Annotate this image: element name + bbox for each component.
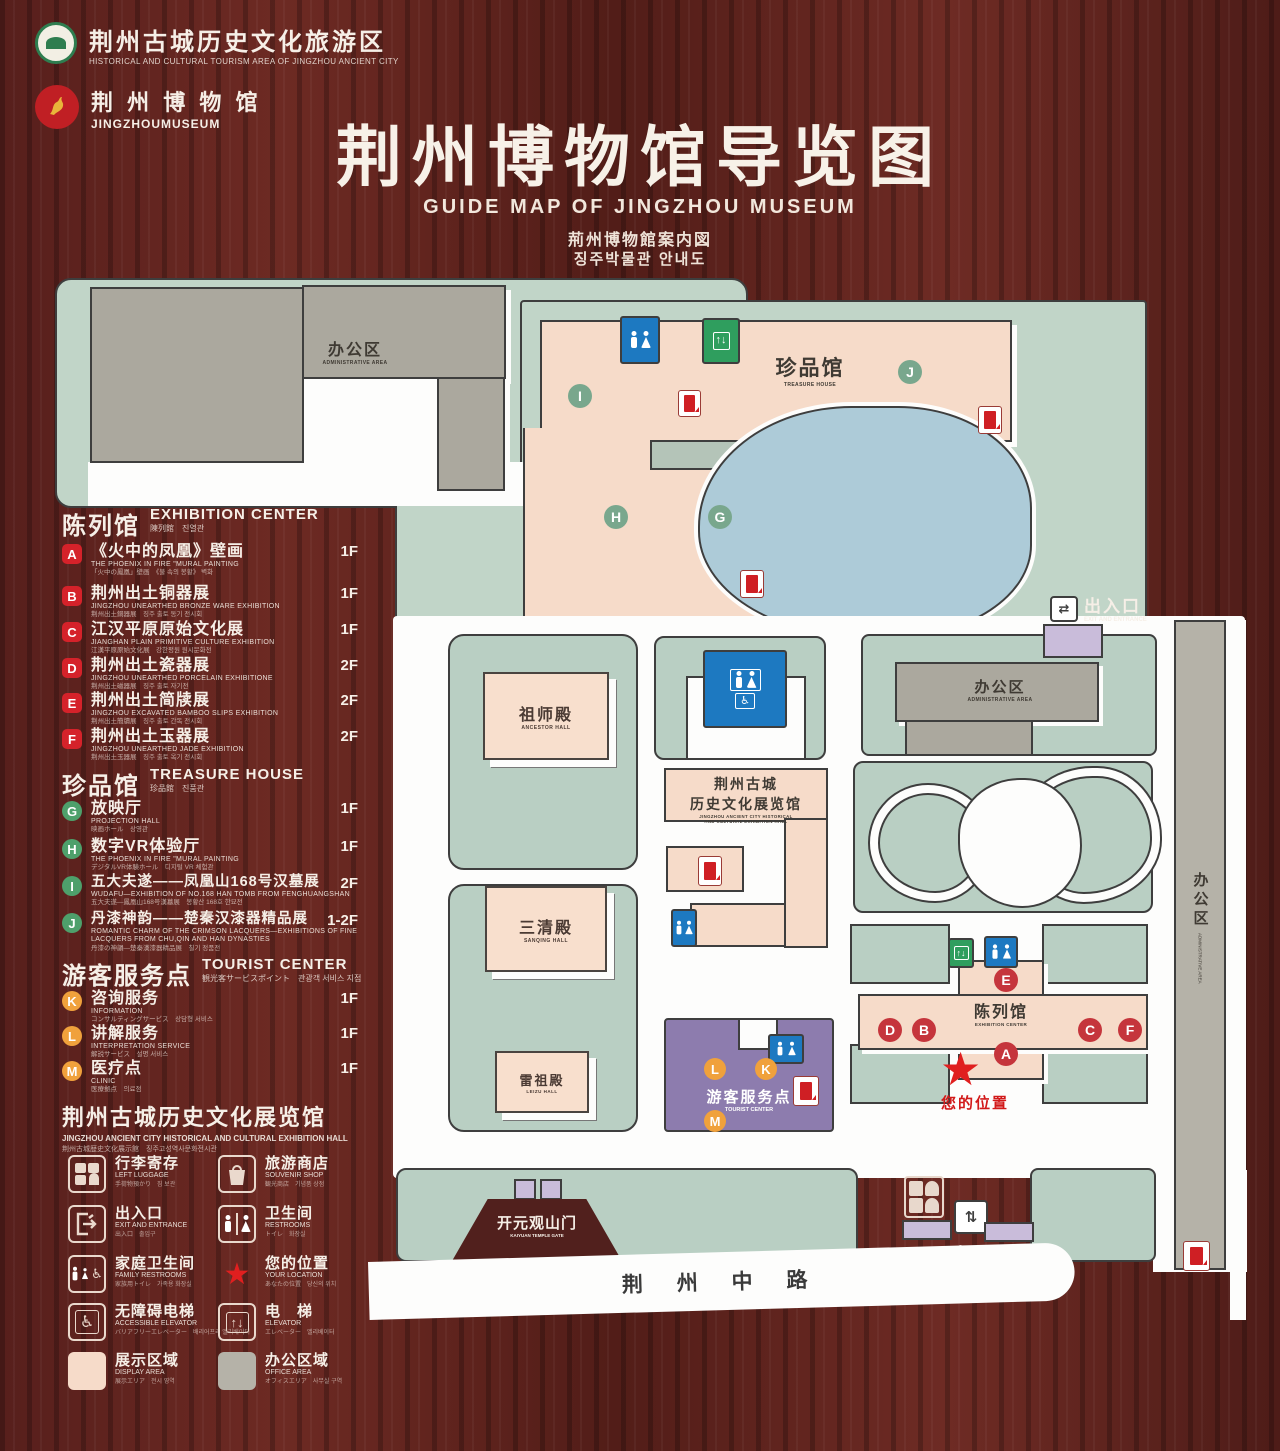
fire-extinguisher-icon [740,570,764,598]
legend-office-area: 办公区域 OFFICE AREA オフィスエリア 사무실 구역 [218,1352,342,1390]
marker-H: H [604,505,628,529]
legend-item-F: F 荆州出土玉器展 JINGZHOU UNEARTHED JADE EXHIBI… [62,728,358,762]
marker-C: C [1078,1018,1102,1042]
elevator-icon-exh: ↑↓ [948,938,974,968]
fire-extinguisher-icon [678,390,701,417]
treasure-house-label: 珍品馆 TREASURE HOUSE [755,352,865,388]
legend-display-area: 展示区域 DISPLAY AREA 展示エリア 전시 영역 [68,1352,179,1390]
legend-souvenir-shop: 旅游商店 SOUVENIR SHOP 観光商店 기념품 상점 [218,1155,329,1193]
exhibition-center-label: 陈列馆 EXHIBITION CENTER [958,998,1044,1027]
souvenir-shop-icon [218,1155,256,1193]
legend: 陈列馆 EXHIBITION CENTER 陳列館 진열관 A 《火中的凤凰》壁… [62,0,358,1451]
female-figure [748,672,756,688]
accessible-elevator-icon: ♿ [68,1303,106,1341]
legend-family-restrooms: ♿ 家庭卫生间 FAMILY RESTROOMS 家族用トイレ 가족용 화장실 [68,1255,195,1293]
gate-booth [540,1179,562,1200]
male-figure [777,1043,783,1056]
restrooms-icon [218,1205,256,1243]
female-figure [642,332,650,348]
city-hall-bottom [690,903,788,947]
legend-item-I: I 五大夫遂——凤凰山168号汉墓展 WUDAFU—EXHIBITION OF … [62,875,358,907]
garden-plaza [958,778,1082,908]
marker-B: B [912,1018,936,1042]
legend-item-D: D 荆州出土瓷器展 JINGZHOU UNEARTHED PORCELAIN E… [62,657,358,691]
legend-item-L: L 讲解服务 INTERPRETATION SERVICE 解説サービス 설명 … [62,1025,358,1059]
restroom-icon-central: ♿ [703,650,787,728]
male-figure [630,332,638,348]
marker-F: F [1118,1018,1142,1042]
fire-extinguisher-icon [698,856,722,886]
entrance-gate-top [1043,624,1103,658]
elevator-icon-upper: ↑↓ [702,318,740,364]
ancestor-hall: 祖师殿ANCESTOR HALL [483,672,609,760]
legend-item-M: M 医疗点 CLINIC 医療拠点 의료점 1F [62,1060,358,1094]
admin-strip-label-en: ADMINISTRATIVE AREA [1198,933,1203,984]
male-figure [992,945,999,959]
female-figure [242,1216,250,1232]
restroom-icon-tourist [768,1034,804,1064]
exh-court-tr [1042,924,1148,984]
marker-E: E [994,968,1018,992]
road-label: 荆 州 中 路 [622,1263,822,1299]
right-path-strip [1230,620,1246,1320]
legend-item-K: K 咨询服务 INFORMATION コンサルティングサービス 상담형 서비스 … [62,990,358,1024]
tourist-center-label: 游客服务点 TOURIST CENTER [674,1086,824,1113]
fire-extinguisher-icon [978,406,1002,434]
marker-D: D [878,1018,902,1042]
marker-I: I [568,384,592,408]
adult-figure [72,1268,78,1281]
elevator-icon: ↑↓ [218,1303,256,1341]
legend-hall-banner: 荆州古城历史文化展览馆 JINGZHOU ANCIENT CITY HISTOR… [62,1100,398,1154]
your-location-label: 您的位置 [925,1092,1025,1113]
marker-A: A [994,1042,1018,1066]
pond [698,406,1032,638]
legend-item-C: C 江汉平原原始文化展 JIANGHAN PLAIN PRIMITIVE CUL… [62,621,358,655]
legend-restrooms: 卫生间 RESTROOMS トイレ 화장실 [218,1205,313,1243]
fire-extinguisher-icon [1183,1241,1210,1271]
restroom-icon-exh [984,936,1018,968]
exit-entrance-icon [68,1205,106,1243]
restroom-icon-upper [620,316,660,364]
male-figure [735,672,743,688]
accessible-icon: ♿ [735,693,755,709]
admin-strip: 办公区 ADMINISTRATIVE AREA [1174,620,1226,1270]
legend-exhibition-header: 陈列馆 EXHIBITION CENTER 陳列館 진열관 [62,506,319,541]
left-luggage-icon [68,1155,106,1193]
admin-building-right-ext [905,722,1033,756]
marker-L: L [704,1058,726,1080]
marker-J: J [898,360,922,384]
female-figure [789,1043,795,1056]
admin-area-right-label: 办公区 ADMINISTRATIVE AREA [935,676,1065,703]
legend-item-B: B 荆州出土铜器展 JINGZHOU UNEARTHED BRONZE WARE… [62,585,358,619]
legend-item-A: A 《火中的凤凰》壁画 THE PHOENIX IN FIRE "MURAL P… [62,543,358,577]
female-figure [1004,945,1011,959]
marker-M: M [704,1110,726,1132]
legend-item-E: E 荆州出土简牍展 JINGZHOU EXCAVATED BAMBOO SLIP… [62,692,358,726]
your-location-star-icon: ★ [218,1255,256,1293]
male-figure [676,922,682,935]
exit-icon-top: ⇄ [1050,596,1078,622]
family-restrooms-icon: ♿ [68,1255,106,1293]
exh-court-br [1042,1044,1148,1104]
left-luggage-icon-map [904,1176,944,1218]
admin-building-top-3 [437,377,505,491]
entrance-gate-bottom [902,1220,952,1240]
female-figure [686,922,692,935]
sanqing-hall: 三清殿SANQING HALL [485,886,607,972]
legend-item-J: J 丹漆神韵——楚秦汉漆器精品展 ROMANTIC CHARM OF THE C… [62,912,358,953]
your-location-star-icon: ★ [940,1046,981,1092]
legend-item-G: G 放映厅 PROJECTION HALL 映画ホール 상영관 1F [62,800,358,834]
legend-tourist-header: 游客服务点 TOURIST CENTER 観光客サービスポイント 관광객 서비스… [62,956,361,991]
entrance-gate-bottom [984,1222,1034,1242]
exh-court-tl [850,924,950,984]
legend-left-luggage: 行李寄存 LEFT LUGGAGE 手荷物預かり 짐 보관 [68,1155,179,1193]
child-figure [83,1269,88,1279]
display-area-swatch [68,1352,106,1390]
legend-treasure-header: 珍品馆 TREASURE HOUSE 珍品館 진품관 [62,766,304,801]
city-hall-right [784,818,828,948]
restroom-icon-small [671,909,697,947]
legend-elevator: ↑↓ 电 梯 ELEVATOR エレベーター 엘리베이터 [218,1303,335,1341]
legend-your-location: ★ 您的位置 YOUR LOCATION あなたの位置 당신의 위치 [218,1255,336,1293]
city-hall-label: 荆州古城 历史文化展览馆 JINGZHOU ANCIENT CITY HISTO… [664,774,828,824]
office-area-swatch [218,1352,256,1390]
exit-top-label: 出入口 EXIT AND ENTRANCE [1084,592,1147,623]
marker-G: G [708,505,732,529]
gate-booth [514,1179,536,1200]
leizu-hall: 雷祖殿LEIZU HALL [495,1051,589,1113]
marker-K: K [755,1058,777,1080]
exit-icon-bottom: ⇅ [954,1200,988,1234]
male-figure [224,1216,232,1232]
legend-item-H: H 数字VR体验厅 THE PHOENIX IN FIRE "MURAL PAI… [62,838,358,872]
legend-exit-entrance: 出入口 EXIT AND ENTRANCE 出入口 출입구 [68,1205,187,1243]
admin-strip-label: 办公区 [1190,872,1211,929]
